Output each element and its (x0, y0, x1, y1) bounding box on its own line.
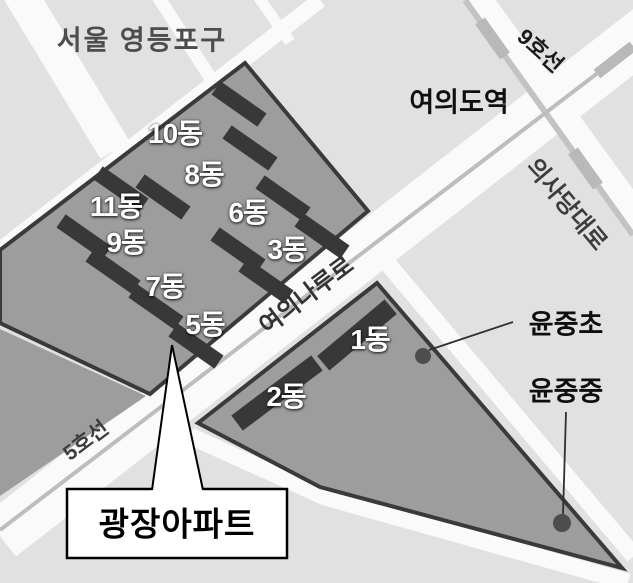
school-dot-yunjung-elementary (415, 348, 431, 364)
building-label-2: 2동 (266, 383, 305, 411)
building-label-11: 11동 (90, 193, 142, 221)
school-label-yunjung-elementary: 윤중초 (529, 312, 604, 339)
building-label-7: 7동 (145, 273, 184, 301)
school-label-yunjung-middle: 윤중중 (529, 379, 604, 406)
building-label-10: 10동 (148, 120, 202, 148)
building-label-3: 3동 (267, 236, 306, 264)
building-label-1: 1동 (350, 326, 389, 354)
locator-map: 서울 영등포구 여의도역 9호선 의사당대로 여의나루로 5호선 윤중초 윤중중… (0, 0, 633, 583)
building-label-8: 8동 (184, 161, 223, 189)
building-label-5: 5동 (185, 311, 224, 339)
apartment-name-label: 광장아파트 (99, 508, 256, 541)
station-label-yeouido: 여의도역 (409, 90, 508, 117)
building-label-6: 6동 (228, 199, 267, 227)
building-label-9: 9동 (106, 229, 145, 257)
region-title: 서울 영등포구 (57, 28, 228, 55)
school-dot-yunjung-middle (553, 514, 571, 532)
